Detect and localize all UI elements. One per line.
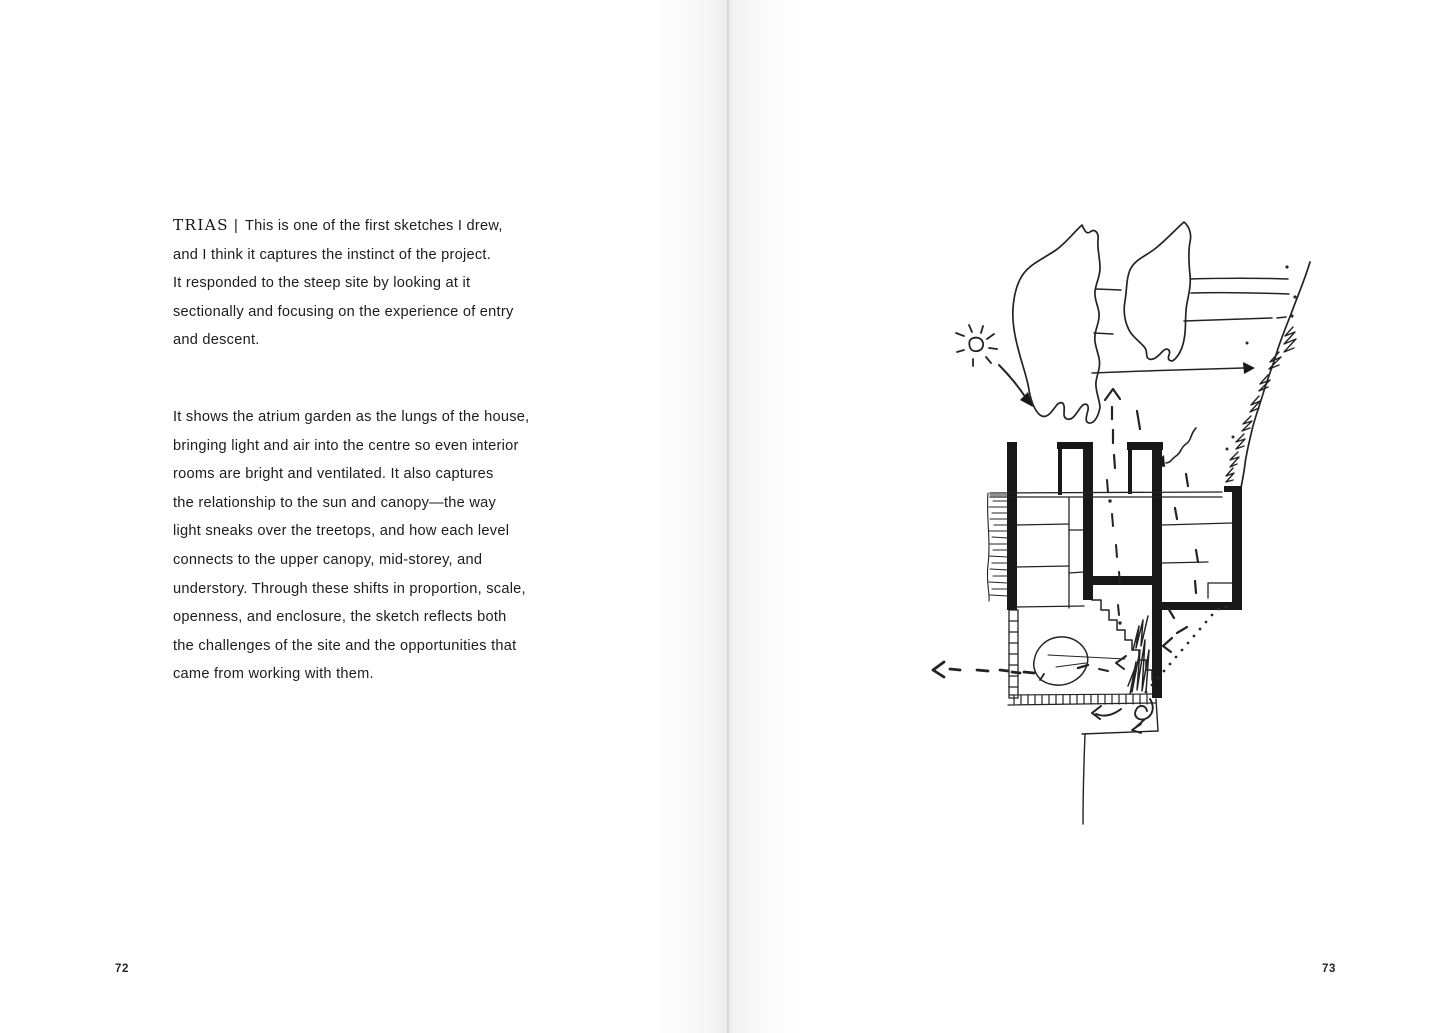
text-line: rooms are bright and ventilated. It also… xyxy=(173,460,533,489)
sun-symbol xyxy=(956,325,997,366)
text-line: It shows the atrium garden as the lungs … xyxy=(173,403,533,432)
atrium-air-arrow xyxy=(1105,389,1120,468)
text-line: and I think it captures the instinct of … xyxy=(173,241,533,270)
building-walls xyxy=(1007,442,1242,698)
left-page: TRIAS|This is one of the first sketches … xyxy=(0,0,728,1033)
text-line: understory. Through these shifts in prop… xyxy=(173,575,533,604)
descent-dashed-path xyxy=(1099,480,1126,671)
site-section-sketch xyxy=(880,195,1350,835)
text-line-content: This is one of the first sketches I drew… xyxy=(245,218,503,234)
slope-vegetation-scribble xyxy=(1226,327,1297,482)
right-page: 73 xyxy=(728,0,1456,1033)
speaker-label: TRIAS xyxy=(173,216,229,234)
entry-curve-arrow xyxy=(1092,706,1121,719)
light-path-arrow xyxy=(1166,428,1196,463)
slope-ground-line xyxy=(1230,262,1310,491)
page-number-left: 72 xyxy=(115,963,129,975)
atrium-plant-scribble xyxy=(1128,616,1149,694)
tree-canopy-right xyxy=(1124,222,1190,361)
text-line: bringing light and air into the centre s… xyxy=(173,432,533,461)
spiral-drop-arrow xyxy=(1132,699,1153,733)
text-line: It responded to the steep site by lookin… xyxy=(173,269,533,298)
sun-arrow xyxy=(999,365,1026,398)
body-text: TRIAS|This is one of the first sketches … xyxy=(173,211,533,689)
text-line: TRIAS|This is one of the first sketches … xyxy=(173,211,533,241)
floor-hatch-strip xyxy=(1008,694,1155,705)
segmented-wall-column xyxy=(1009,610,1018,698)
text-line: came from working with them. xyxy=(173,660,533,689)
tree-canopy-left xyxy=(1013,225,1100,423)
book-spread: TRIAS|This is one of the first sketches … xyxy=(0,0,1456,1033)
boulder-sketch xyxy=(1034,637,1125,685)
retaining-wall-hatching xyxy=(987,493,1008,601)
text-line: sectionally and focusing on the experien… xyxy=(173,298,533,327)
canopy-level-lines xyxy=(1092,278,1289,373)
text-line: connects to the upper canopy, mid-storey… xyxy=(173,546,533,575)
speaker-separator: | xyxy=(234,218,238,234)
exit-dashed-arrow xyxy=(933,662,1034,677)
paragraph-1: TRIAS|This is one of the first sketches … xyxy=(173,211,533,355)
level-line-arrowhead xyxy=(1243,362,1255,374)
paragraph-2: It shows the atrium garden as the lungs … xyxy=(173,403,533,689)
text-line: the challenges of the site and the oppor… xyxy=(173,632,533,661)
page-number-right: 73 xyxy=(1322,963,1336,975)
text-line: openness, and enclosure, the sketch refl… xyxy=(173,603,533,632)
text-line: and descent. xyxy=(173,326,533,355)
text-line: the relationship to the sun and canopy—t… xyxy=(173,489,533,518)
text-line: light sneaks over the treetops, and how … xyxy=(173,517,533,546)
